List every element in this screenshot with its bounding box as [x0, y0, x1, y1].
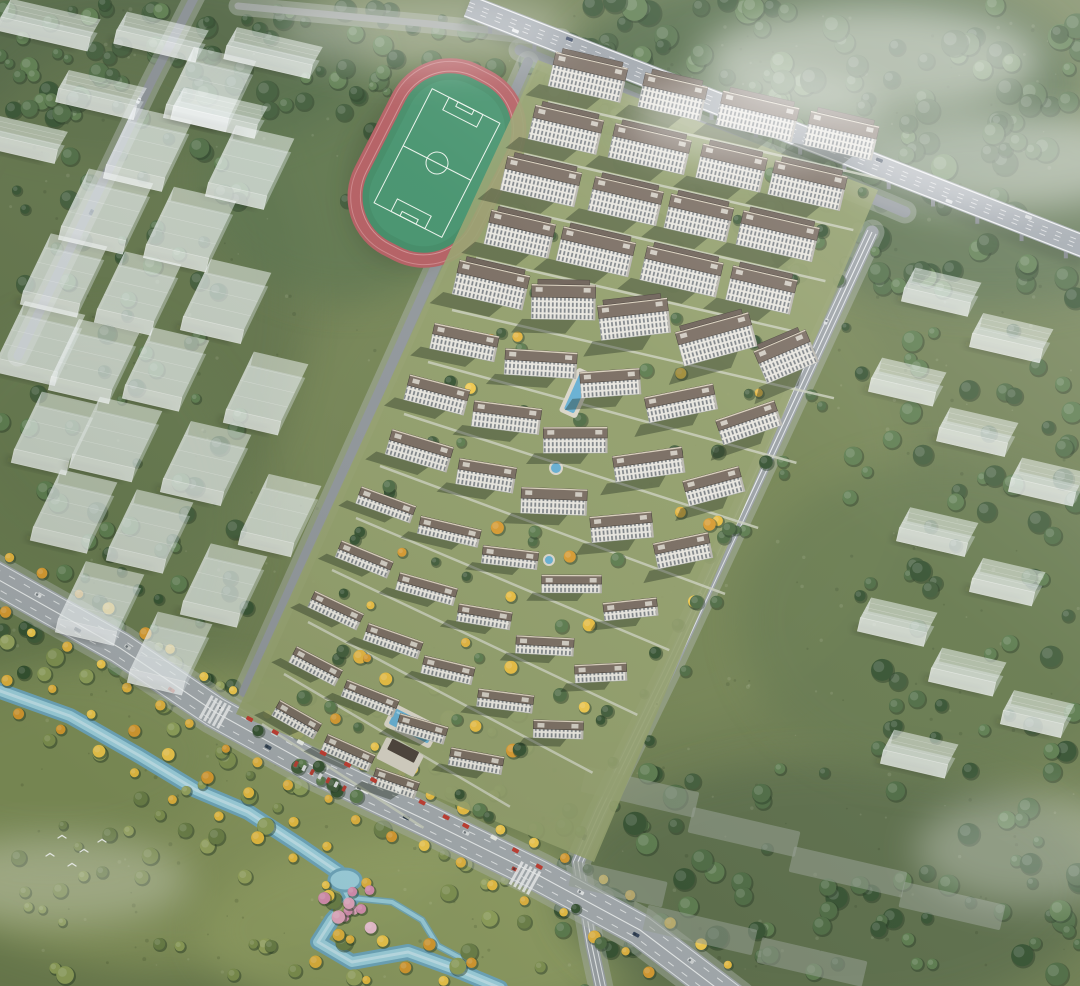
aerial-site-render [0, 0, 1080, 986]
atmosphere-overlay [0, 0, 1080, 986]
light-wash [0, 0, 1080, 986]
rendered-scene [0, 0, 1080, 986]
